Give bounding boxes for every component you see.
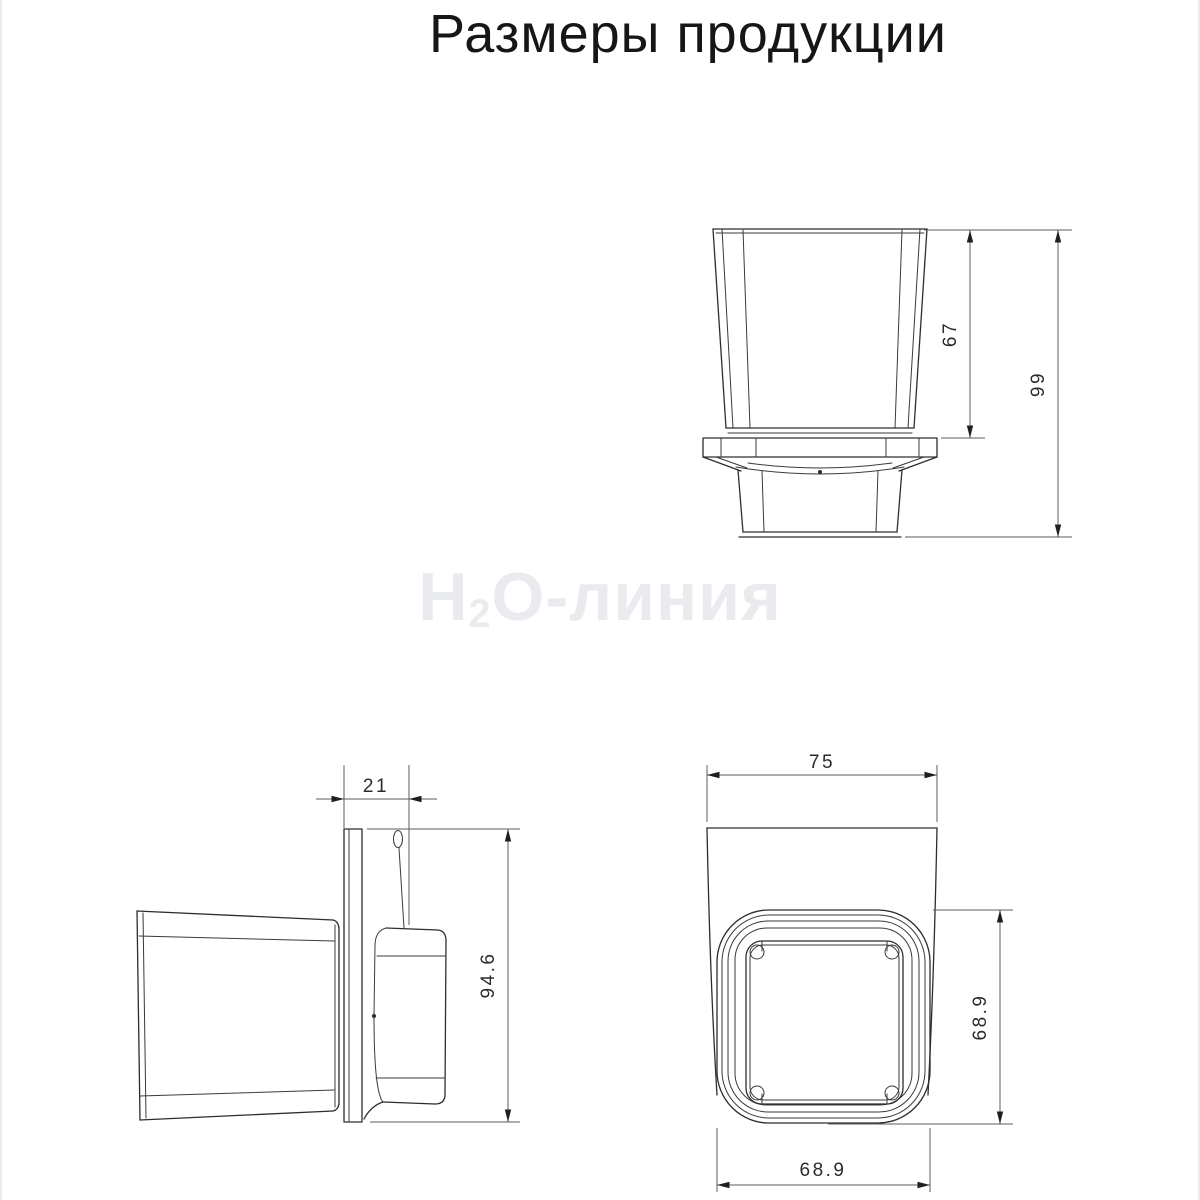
- side-view: 21 94.6: [137, 765, 520, 1122]
- front-view-dimensions: 67 99: [905, 230, 1072, 537]
- side-view-dimensions: 21 94.6: [316, 765, 520, 1122]
- top-dim-inner-depth: 68.9: [970, 994, 991, 1041]
- top-view-dimensions: 75 68.9 68.9: [707, 752, 1013, 1192]
- dimension-drawing: 67 99 21: [0, 0, 1200, 1200]
- front-dim-total-height: 99: [1028, 371, 1049, 397]
- top-view: 75 68.9 68.9: [707, 752, 1013, 1192]
- top-dim-inner-width: 68.9: [800, 1160, 847, 1181]
- front-dim-cup-height: 67: [940, 321, 961, 347]
- top-dim-outer-width: 75: [809, 752, 835, 773]
- side-dim-bracket-depth: 21: [363, 776, 389, 797]
- side-dim-mount-height: 94.6: [478, 952, 499, 999]
- front-view: 67 99: [703, 229, 1072, 537]
